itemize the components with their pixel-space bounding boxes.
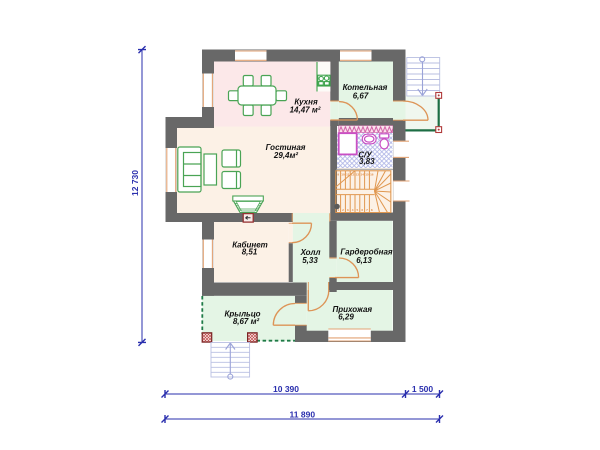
svg-text:11: 11	[346, 173, 350, 177]
svg-text:3: 3	[347, 208, 349, 212]
svg-text:1 500: 1 500	[412, 384, 434, 394]
svg-text:14,47 м²: 14,47 м²	[290, 106, 321, 115]
svg-text:3,83: 3,83	[359, 157, 375, 166]
svg-text:7: 7	[366, 208, 368, 212]
svg-text:5: 5	[357, 208, 359, 212]
svg-text:2: 2	[342, 208, 344, 212]
svg-text:8: 8	[371, 208, 373, 212]
svg-text:1: 1	[337, 208, 339, 212]
svg-text:6,13: 6,13	[356, 256, 372, 265]
svg-text:15: 15	[365, 173, 369, 177]
svg-text:14: 14	[360, 173, 364, 177]
svg-text:6,29: 6,29	[338, 312, 354, 321]
svg-text:12 730: 12 730	[130, 170, 140, 196]
svg-text:9: 9	[337, 173, 339, 177]
svg-text:4: 4	[352, 208, 354, 212]
svg-text:6: 6	[361, 208, 363, 212]
svg-text:10: 10	[341, 173, 345, 177]
svg-text:29,4м²: 29,4м²	[273, 151, 298, 160]
svg-text:12: 12	[351, 173, 355, 177]
svg-text:16: 16	[370, 173, 374, 177]
svg-text:Гардеробная: Гардеробная	[340, 247, 393, 256]
svg-text:8,51: 8,51	[242, 248, 258, 257]
svg-text:8,67 м²: 8,67 м²	[233, 317, 260, 326]
svg-text:10 390: 10 390	[273, 384, 299, 394]
svg-text:13: 13	[356, 173, 360, 177]
svg-text:6,67: 6,67	[353, 92, 369, 101]
svg-text:11 890: 11 890	[290, 409, 316, 419]
svg-text:5,33: 5,33	[302, 256, 318, 265]
